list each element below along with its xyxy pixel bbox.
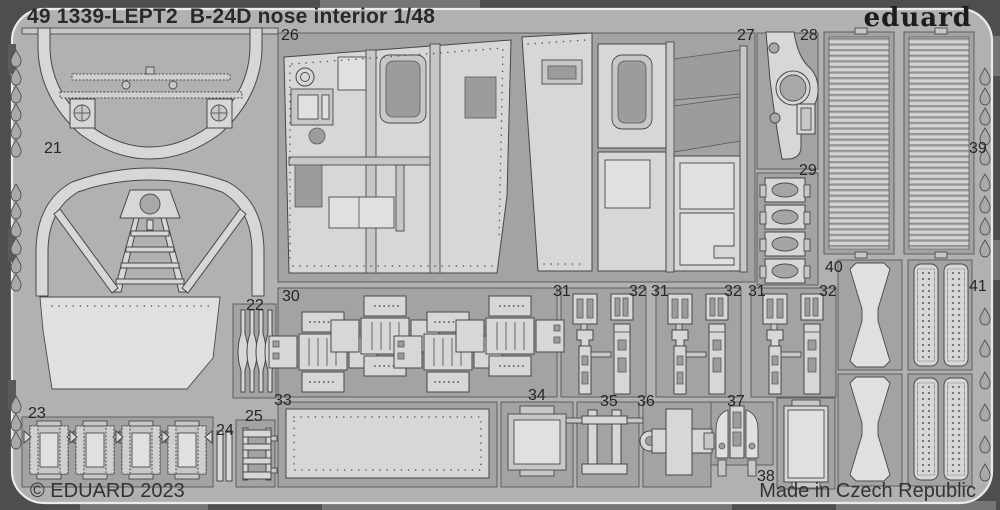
part-label-36: 36: [637, 394, 655, 410]
part-label-39: 39: [969, 141, 987, 157]
part-label-29: 29: [799, 163, 817, 179]
part-label-30: 30: [282, 289, 300, 305]
part-label-41: 41: [969, 279, 987, 295]
eduard-logo: eduard: [864, 3, 972, 33]
part-label-38: 38: [757, 469, 775, 485]
copyright-text: © EDUARD 2023: [30, 480, 185, 503]
part-label-28: 28: [800, 28, 818, 44]
part-label-34: 34: [528, 388, 546, 404]
part-label-40: 40: [825, 260, 843, 276]
part-label-32: 32: [724, 284, 742, 300]
part-26-sidewall: [284, 40, 511, 273]
part-label-31: 31: [651, 284, 669, 300]
part-label-21: 21: [44, 141, 62, 157]
part-label-31: 31: [553, 284, 571, 300]
pe-sheet-graphic: [0, 0, 1000, 510]
part-38-panel: [784, 400, 828, 488]
part-label-27: 27: [737, 28, 755, 44]
made-in-text: Made in Czech Republic: [759, 480, 976, 503]
sheet-title: 49 1339-LEPT2 B-24D nose interior 1/48: [27, 5, 435, 29]
part-label-25: 25: [245, 409, 263, 425]
part-34-box: [508, 406, 566, 476]
part-label-23: 23: [28, 406, 46, 422]
part-label-32: 32: [819, 284, 837, 300]
part-label-24: 24: [216, 423, 234, 439]
part-label-32: 32: [629, 284, 647, 300]
part-label-33: 33: [274, 393, 292, 409]
part-label-35: 35: [600, 394, 618, 410]
pe-fret-scan: 49 1339-LEPT2 B-24D nose interior 1/48 e…: [0, 0, 1000, 510]
part-label-26: 26: [281, 28, 299, 44]
part-label-31: 31: [748, 284, 766, 300]
part-21-floor: [40, 297, 220, 389]
part-label-22: 22: [246, 298, 264, 314]
part-33-panel: [286, 409, 489, 478]
part-label-37: 37: [727, 394, 745, 410]
